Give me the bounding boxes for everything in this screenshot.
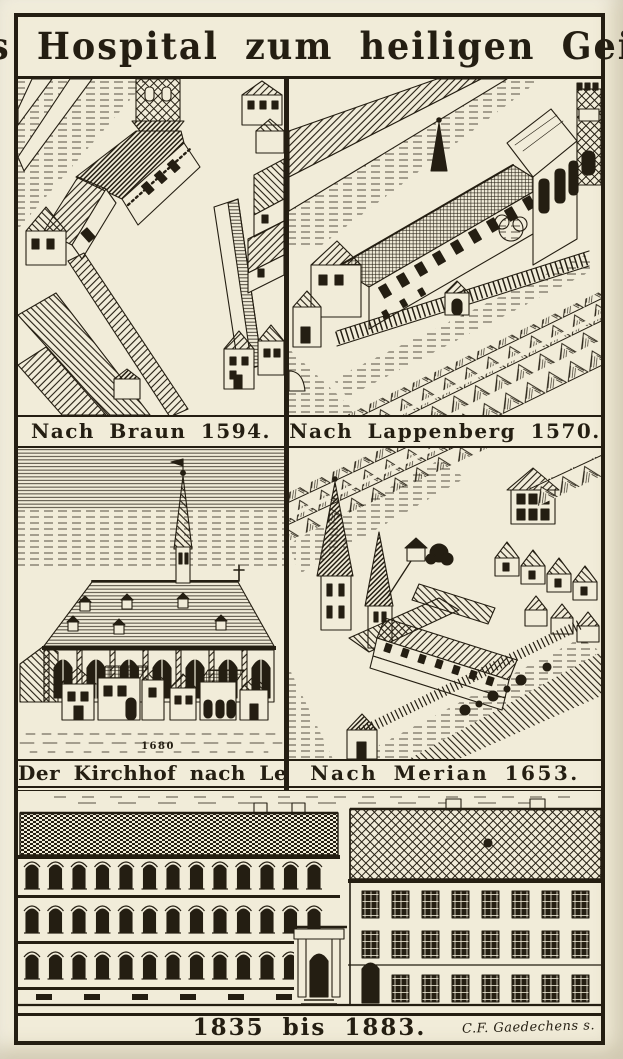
facade-right-building	[348, 799, 601, 1005]
facade-rect-windows-row3	[362, 963, 589, 1003]
merian-right-houses	[495, 448, 601, 642]
facade-arched-windows-row3	[24, 952, 322, 979]
scanned-page: Das Hospital zum heiligen Geist.	[0, 0, 623, 1059]
caption-braun: Nach Braun 1594.	[18, 417, 284, 445]
etching-modern-building	[18, 791, 601, 1013]
title-band: Das Hospital zum heiligen Geist.	[18, 17, 601, 76]
lemkus-cross-finial	[234, 565, 244, 581]
facade-left-building	[18, 803, 340, 1000]
facade-sky	[54, 797, 578, 803]
lappenberg-tower	[577, 83, 601, 185]
etching-lemkus: 1680	[18, 448, 284, 759]
caption-lappenberg: Nach Lappenberg 1570.	[289, 417, 601, 445]
lemkus-left-gable	[20, 646, 58, 702]
lemkus-church-roof	[44, 581, 274, 646]
lemkus-inscription: 1680	[141, 741, 175, 752]
facade-portal	[291, 927, 347, 1004]
braun-right-houses	[242, 81, 284, 293]
rule-below-captions-2a	[18, 786, 601, 788]
page-title: Das Hospital zum heiligen Geist.	[0, 24, 623, 68]
etching-lappenberg	[289, 79, 601, 415]
facade-arched-windows-row1	[24, 862, 322, 889]
etching-merian	[289, 448, 601, 759]
etching-braun	[18, 79, 284, 415]
facade-rect-windows-row1	[362, 891, 589, 918]
caption-lemkus: Der Kirchhof nach Lemkus.	[18, 760, 284, 786]
merian-top-left-rooftops	[289, 448, 493, 574]
merian-bottom-left	[289, 668, 377, 759]
facade-rect-windows-row2	[362, 931, 589, 958]
facade-basement-vents	[36, 994, 292, 1000]
lemkus-sky	[18, 448, 284, 566]
caption-merian: Nach Merian 1653.	[289, 760, 601, 786]
facade-arched-windows-row2	[24, 906, 322, 933]
